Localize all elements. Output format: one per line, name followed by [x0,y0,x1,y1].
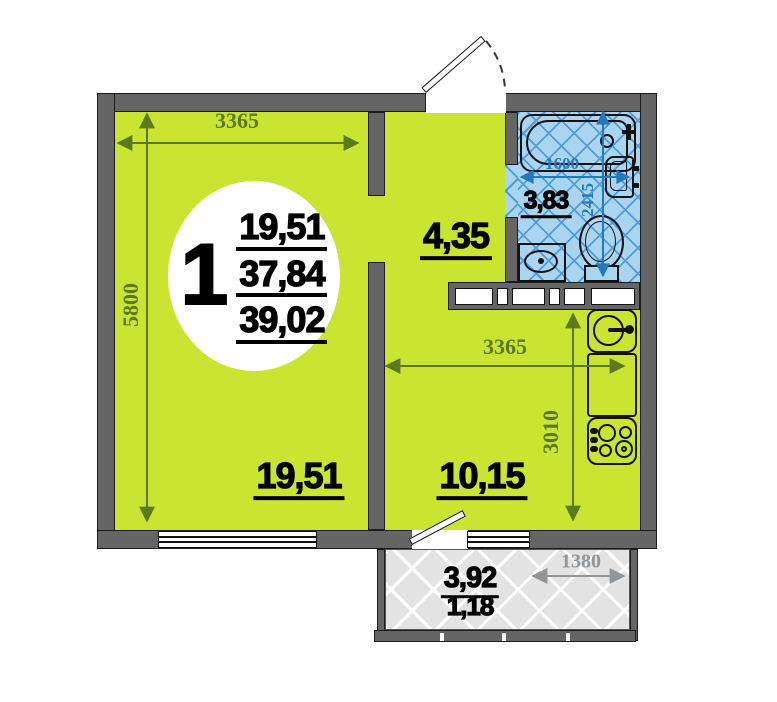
stove-icon [587,417,637,465]
area-label-living: 19,51 [253,458,344,500]
area-label-balcony-reduced: 1,18 [444,593,497,621]
stove-burner-ring [621,446,627,452]
window-pane-line [468,536,529,538]
toilet-bowl-inner [585,221,616,262]
unit-area-living: 19,51 [236,208,327,251]
area-label-kitchen: 10,15 [436,458,527,500]
dim-label-living-height: 5800 [118,283,144,327]
entrance-door-opening [426,92,506,113]
stove-burner [619,426,632,439]
wall-right [640,93,657,549]
closet-section [591,288,635,305]
unit-area-usable: 37,84 [236,255,327,298]
balcony-wall-left [377,549,385,641]
dim-label-kitchen-width: 3365 [483,334,527,360]
entrance-door-leaf [421,36,485,93]
wall-left [97,93,115,549]
stove-knob [590,428,598,434]
wall-interior-lower [368,262,385,530]
kitchen-window [467,531,530,548]
entrance-door-swing-arc [486,41,505,92]
wall-bathroom-lower [505,217,518,282]
bathtub-drain [600,134,614,148]
dim-label-living-width: 3365 [215,108,259,134]
living-window [158,531,317,548]
closet [448,282,640,310]
floor-plan: 1 19,51 37,84 39,02 19,51 10,15 4,35 3,8… [0,0,777,702]
closet-section [497,288,508,305]
kitchen-counter [587,353,637,417]
unit-area-total: 39,02 [236,301,327,344]
window-pane-line [159,536,316,538]
closet-section [549,288,560,305]
wall-interior-upper [368,112,385,196]
unit-info-circle: 1 19,51 37,84 39,02 [168,181,340,371]
dim-label-kitchen-height: 3010 [538,410,564,454]
stove-knob [590,437,598,443]
bathroom-door-gap [505,165,518,217]
bath-sink-tap [633,183,639,188]
window-pane-line [468,541,529,543]
bath-sink-icon [605,156,634,198]
washbasin-icon [518,243,566,282]
window-pane-line [159,541,316,543]
area-label-bathroom: 3,83 [521,188,572,218]
stove-knob [590,446,598,452]
toilet-tank [584,265,619,282]
dim-label-balcony-width: 1380 [561,551,601,574]
kitchen-sink-tap-knob [625,325,634,334]
bathtub-faucet-icon [622,130,635,134]
stove-burner [598,424,616,442]
balcony-railing [374,630,636,642]
dim-label-bathroom-height: 2415 [578,183,598,217]
area-label-hallway: 4,35 [420,218,492,260]
closet-section [455,288,493,305]
bath-sink-tap [633,166,639,171]
railing-gap [440,633,444,641]
toilet-icon [579,215,624,270]
railing-gap [566,633,570,641]
washbasin-drain [538,258,544,264]
unit-area-list: 19,51 37,84 39,02 [236,206,327,346]
dim-label-bathroom-width: 1600 [545,154,579,174]
wall-top-left [97,93,426,112]
bath-sink-inner [610,161,627,191]
closet-section [564,288,585,305]
closet-section [512,288,545,305]
railing-gap [502,633,506,641]
wall-top-right [505,93,657,112]
wall-bathroom-upper [505,112,518,165]
balcony-wall-right [630,549,638,641]
kitchen-sink-icon [587,309,637,353]
stove-burner [599,444,612,457]
unit-number: 1 [181,237,229,314]
